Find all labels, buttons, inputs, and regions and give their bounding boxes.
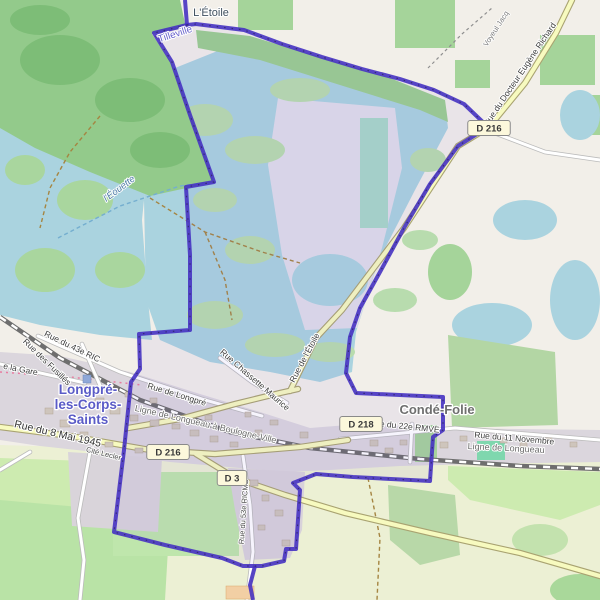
town-longpre-line3: Saints	[68, 412, 109, 427]
badge-d216-west: D 216	[147, 445, 190, 460]
badge-d216-north: D 216	[468, 121, 511, 136]
svg-text:D 216: D 216	[155, 448, 180, 459]
svg-text:D 218: D 218	[348, 420, 373, 431]
badge-d218: D 218	[340, 417, 383, 432]
map-svg: L'ÉtoileTillevilleVoyeul JacqRue du Doct…	[0, 0, 600, 600]
svg-text:D 216: D 216	[476, 124, 501, 135]
svg-text:D 3: D 3	[225, 474, 240, 485]
place-letoile: L'Étoile	[193, 6, 229, 19]
town-longpre-line2: les-Corps-	[55, 397, 122, 412]
town-conde-folie: Condé-Folie	[399, 402, 474, 417]
badge-d3: D 3	[217, 471, 247, 486]
map-canvas[interactable]: L'ÉtoileTillevilleVoyeul JacqRue du Doct…	[0, 0, 600, 600]
